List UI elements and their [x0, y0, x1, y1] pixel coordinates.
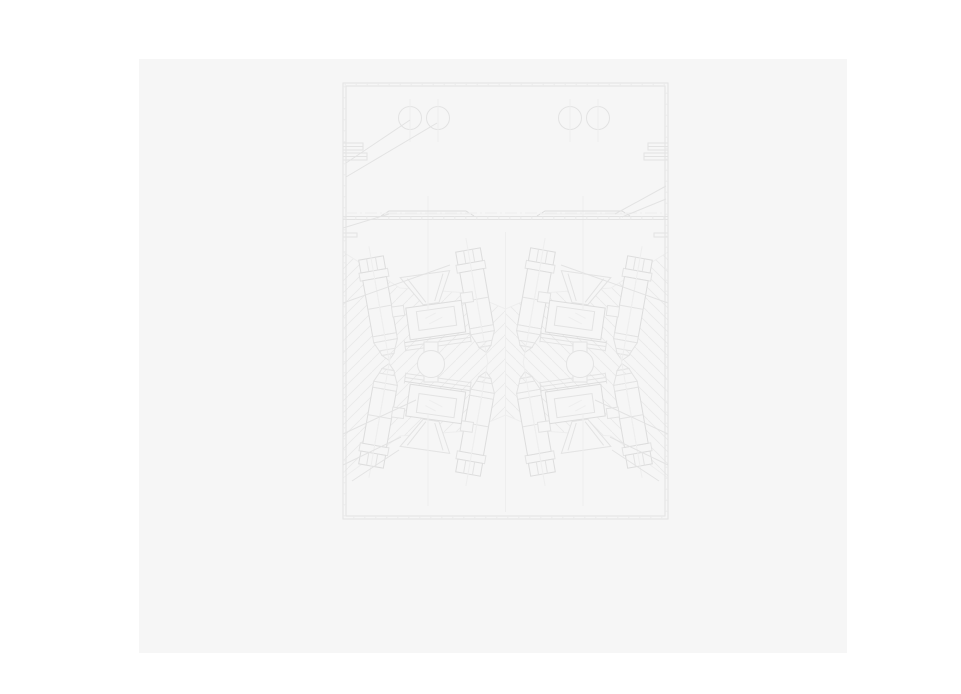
bore-circle	[418, 351, 445, 378]
bore-circles	[399, 99, 610, 142]
deck	[343, 211, 668, 220]
technical-drawing	[0, 0, 961, 694]
desktop-background	[0, 0, 961, 694]
bore-circle	[567, 351, 594, 378]
wall-brackets	[343, 143, 668, 237]
